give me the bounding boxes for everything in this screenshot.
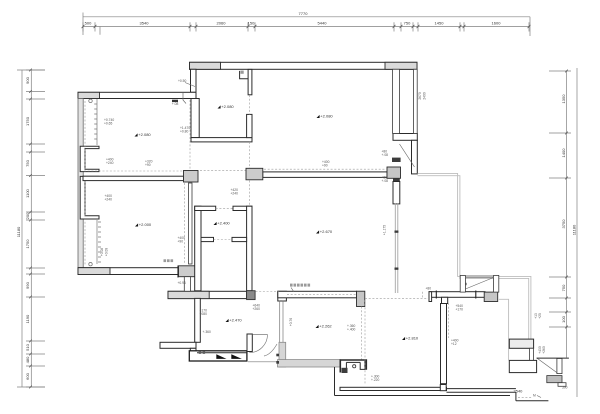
svg-text:2540: 2540 [514,389,524,394]
svg-text:+0.76: +0.76 [289,318,293,327]
svg-text:+.220: +.220 [371,378,380,382]
svg-text:+2.670: +2.670 [320,229,333,234]
svg-text:1100: 1100 [25,188,30,197]
svg-text:11180: 11180 [16,226,21,237]
svg-text:990: 990 [25,281,30,288]
svg-text:+.400: +.400 [347,328,356,332]
svg-text:+12: +12 [451,342,457,346]
svg-text:+240: +240 [106,161,114,165]
svg-text:+2.262: +2.262 [319,324,332,329]
svg-text:+1.175: +1.175 [383,225,387,235]
svg-text:+80: +80 [426,287,432,291]
svg-text:+.08: +.08 [172,102,179,106]
svg-text:+2.470: +2.470 [229,318,242,323]
svg-text:+0.96: +0.96 [178,281,187,285]
svg-text:750: 750 [404,20,411,25]
svg-text:3540: 3540 [140,20,150,25]
svg-text:1750: 1750 [25,116,30,126]
svg-text:+.08: +.08 [382,153,389,157]
svg-text:480: 480 [25,356,30,363]
svg-text:2060: 2060 [217,20,227,25]
svg-text:900: 900 [25,76,30,83]
svg-text:750: 750 [561,284,566,291]
svg-text:600: 600 [25,372,30,379]
svg-text:510: 510 [25,343,30,350]
svg-text:1750: 1750 [25,239,30,249]
svg-text:300: 300 [562,386,568,390]
svg-text:1350: 1350 [561,94,566,104]
svg-text:+2.080: +2.080 [138,132,151,137]
svg-text:+240: +240 [231,192,239,196]
svg-text:+2.080: +2.080 [320,114,333,119]
svg-text:1600: 1600 [492,20,502,25]
svg-text:2400: 2400 [423,92,427,100]
svg-text:1400: 1400 [561,148,566,158]
svg-text:1190: 1190 [25,314,30,323]
svg-text:+240: +240 [105,198,113,202]
svg-text:200: 200 [25,212,30,219]
svg-text:+25: +25 [538,313,542,319]
svg-text:M: M [533,393,536,397]
svg-text:+0.65: +0.65 [104,122,113,126]
svg-text:+.08: +.08 [382,179,389,183]
svg-text:+170: +170 [456,308,464,312]
svg-text:+2.400: +2.400 [217,221,230,226]
svg-text:+.360: +.360 [203,330,212,334]
svg-text:500: 500 [85,20,92,25]
svg-text:+90: +90 [178,240,184,244]
svg-text:+90: +90 [145,163,151,167]
svg-text:2670: 2670 [418,92,422,100]
svg-text:1450: 1450 [435,20,445,25]
svg-text:150: 150 [248,20,255,25]
svg-text:+90: +90 [322,164,328,168]
svg-text:7770: 7770 [299,11,309,16]
svg-text:11180: 11180 [572,224,577,235]
svg-text:5440: 5440 [318,20,328,25]
svg-text:+2.000: +2.000 [139,222,152,227]
svg-text:+0.09: +0.09 [104,248,108,257]
svg-text:+0.80: +0.80 [180,130,189,134]
svg-text:+080: +080 [200,312,208,316]
svg-text:3750: 3750 [561,219,566,229]
svg-text:100: 100 [561,315,566,322]
svg-text:+260: +260 [253,307,261,311]
svg-text:+2.080: +2.080 [221,104,234,109]
svg-text:+2.810: +2.810 [406,336,419,341]
svg-text:+260: +260 [542,346,546,354]
svg-text:750: 750 [25,159,30,166]
